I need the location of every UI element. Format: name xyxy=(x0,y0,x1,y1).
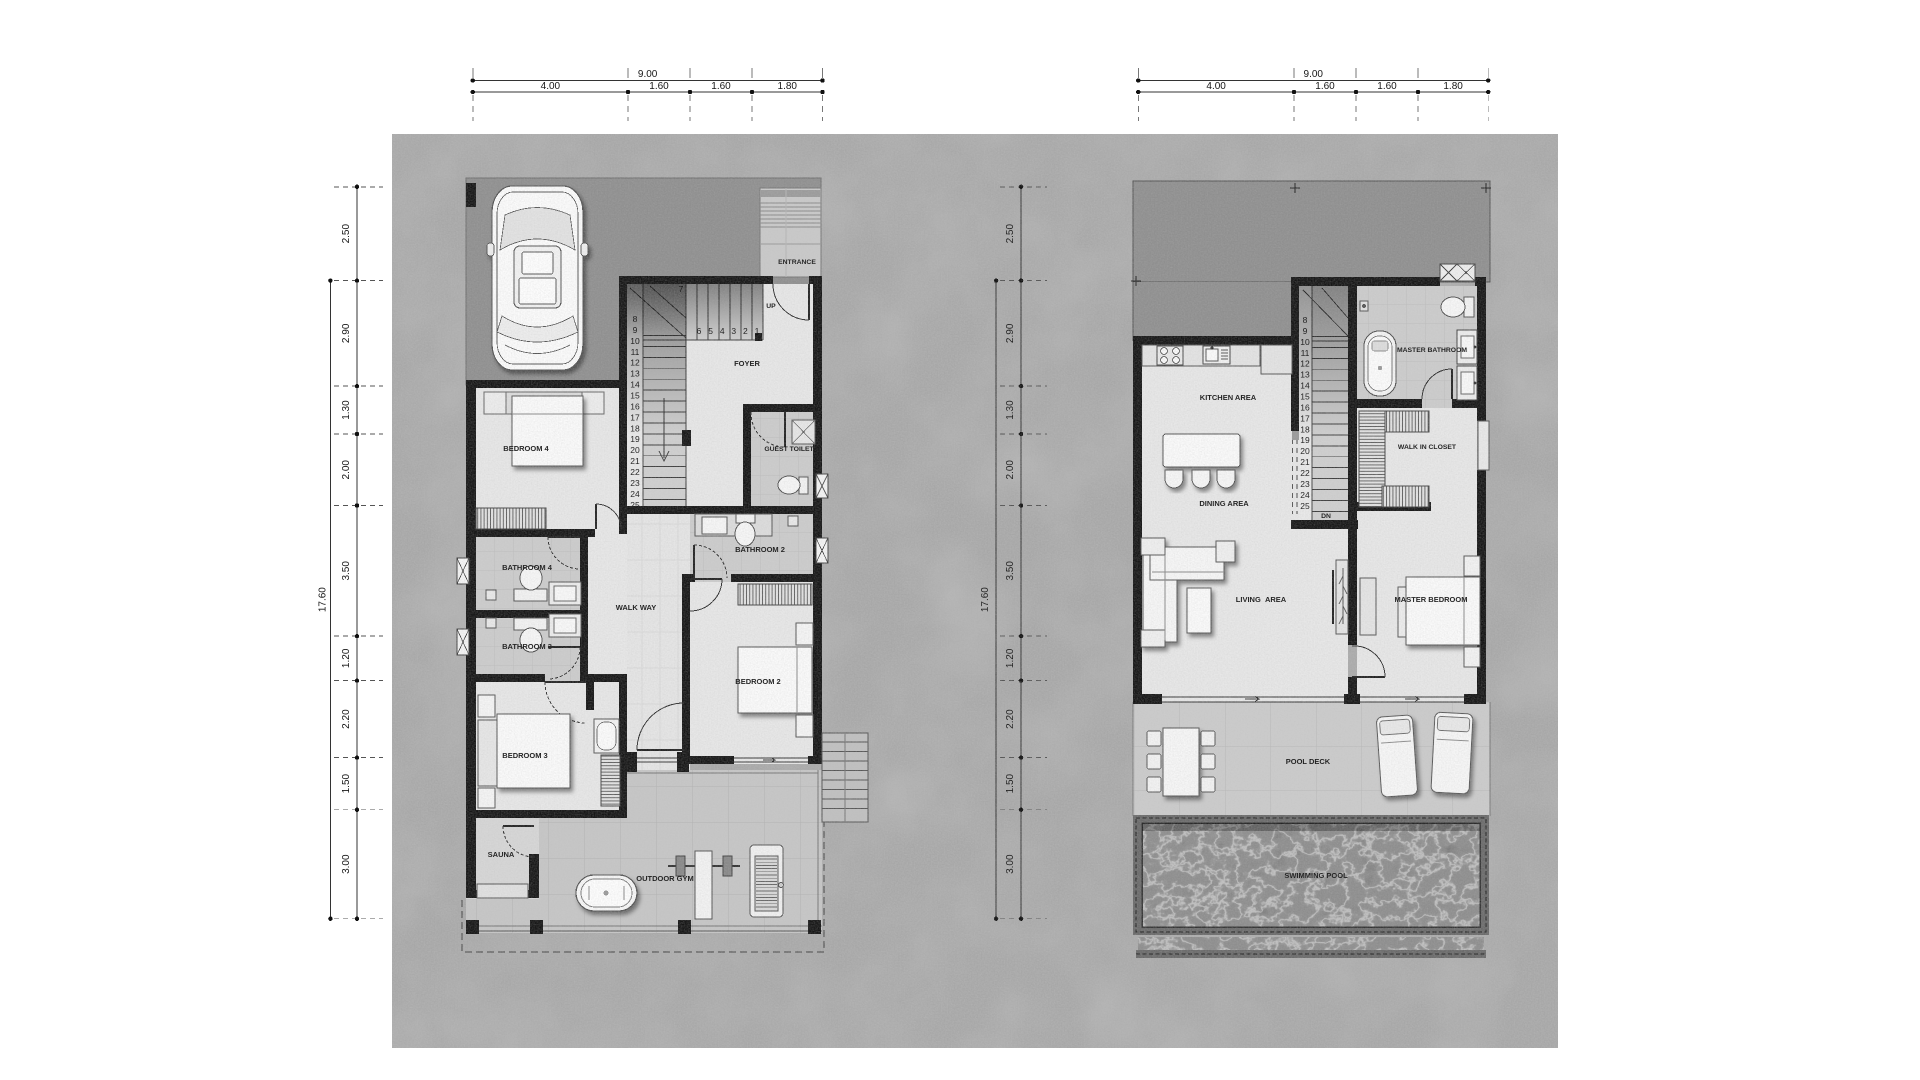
svg-text:1.60: 1.60 xyxy=(1377,81,1397,92)
svg-text:1.60: 1.60 xyxy=(711,81,731,92)
svg-text:9.00: 9.00 xyxy=(638,69,658,80)
svg-text:3.00: 3.00 xyxy=(341,854,352,874)
svg-text:1.80: 1.80 xyxy=(1443,81,1463,92)
svg-text:4.00: 4.00 xyxy=(541,81,561,92)
svg-text:1.30: 1.30 xyxy=(341,400,352,420)
svg-text:2.00: 2.00 xyxy=(341,460,352,480)
svg-text:1.20: 1.20 xyxy=(341,648,352,668)
svg-text:4.00: 4.00 xyxy=(1206,81,1226,92)
svg-text:2.20: 2.20 xyxy=(341,709,352,729)
svg-text:1.60: 1.60 xyxy=(1315,81,1335,92)
svg-text:3.50: 3.50 xyxy=(341,561,352,581)
svg-text:2.50: 2.50 xyxy=(341,224,352,244)
svg-text:1.80: 1.80 xyxy=(778,81,798,92)
svg-text:9.00: 9.00 xyxy=(1304,69,1324,80)
svg-text:1.50: 1.50 xyxy=(341,773,352,793)
svg-text:17.60: 17.60 xyxy=(318,587,329,612)
svg-text:2.90: 2.90 xyxy=(341,323,352,343)
svg-text:1.60: 1.60 xyxy=(649,81,669,92)
